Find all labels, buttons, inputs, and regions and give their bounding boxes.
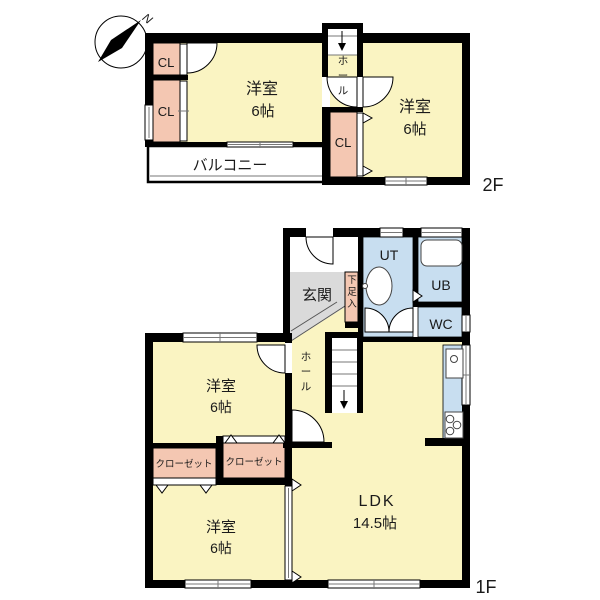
wall (345, 322, 363, 328)
hall-label: ホール (301, 351, 312, 393)
room-size-label: 6帖 (403, 121, 426, 138)
burner-icon (446, 427, 454, 435)
floor-1f: 玄関 下足入 UT UB WC ホール 洋室 6帖 クローゼット クローゼット … (145, 228, 497, 597)
wall (285, 373, 292, 443)
ldk-label: LDK (358, 493, 395, 510)
wall (322, 23, 328, 77)
faucet-icon (363, 284, 368, 289)
floor-1f-label: 1F (475, 577, 496, 597)
sink-basin-icon (366, 267, 392, 305)
wall (357, 23, 363, 77)
shoe-cabinet-label: 下足入 (347, 275, 357, 310)
doorway (357, 77, 363, 107)
room-label: 洋室 (399, 98, 431, 116)
bath-label: UB (431, 277, 450, 293)
closet-label: クローゼット (155, 458, 212, 470)
wall (462, 228, 470, 588)
wall (358, 337, 470, 342)
wall (413, 302, 462, 307)
room-size-label: 6帖 (210, 540, 232, 556)
wall (145, 333, 153, 588)
wall (216, 436, 223, 485)
wall (322, 107, 363, 112)
balcony-label: バルコニー (193, 157, 268, 174)
wall (145, 33, 322, 43)
closet-label: CL (158, 55, 175, 70)
wall (462, 33, 470, 185)
floor-2f-label: 2F (482, 175, 503, 195)
floor-2f: 洋室 6帖 洋室 6帖 CL CL CL ホール バルコニー 2F (145, 23, 504, 195)
closet-label: クローゼット (225, 456, 282, 468)
closet-label: CL (158, 104, 175, 119)
wall (325, 332, 332, 413)
toilet-label: WC (429, 316, 452, 332)
wall (425, 438, 470, 446)
kitchen-sink-icon (446, 349, 463, 378)
burner-icon (446, 415, 454, 423)
wall (216, 478, 292, 485)
wall (285, 443, 292, 486)
compass-north-label: N (140, 10, 156, 27)
wall (145, 75, 188, 80)
room-label: 洋室 (206, 519, 236, 536)
hall-label: ホール (338, 55, 349, 97)
room-label: 洋室 (206, 378, 236, 395)
wall (145, 443, 223, 448)
ldk-size-label: 14.5帖 (353, 515, 397, 532)
front-door-arc (306, 237, 333, 264)
wall (285, 333, 292, 343)
wall (322, 23, 363, 29)
wall (363, 33, 470, 43)
entrance-label: 玄関 (302, 287, 332, 304)
wall (357, 332, 363, 413)
wall (283, 228, 290, 342)
floor-plan: N (0, 0, 600, 600)
wall (322, 112, 330, 185)
room-size-label: 6帖 (251, 103, 274, 120)
bathtub-icon (421, 240, 462, 266)
room-size-label: 6帖 (210, 399, 232, 415)
burner-icon (453, 421, 461, 429)
utility-label: UT (380, 247, 399, 263)
compass-needle-icon (98, 20, 141, 62)
doorway (285, 343, 292, 373)
floor-plan-page: N (0, 0, 600, 600)
kitchen-faucet-icon (451, 356, 458, 363)
room-label: 洋室 (246, 80, 278, 98)
closet-label: CL (335, 135, 352, 150)
doorway (306, 228, 333, 237)
